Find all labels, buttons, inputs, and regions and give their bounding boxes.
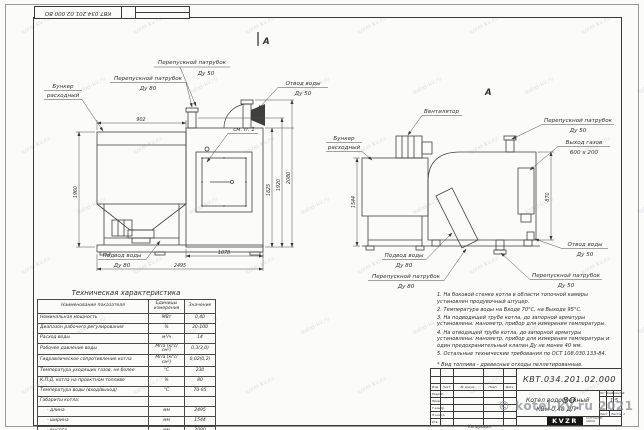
sheets-label: Листов 1: [611, 412, 625, 416]
callout-water-out-r-line2: Ду 50: [576, 252, 594, 258]
view-mark-a: А: [484, 88, 492, 98]
tech-table-cell: 14: [185, 334, 216, 344]
note-line: 2. Температура воды на Входе 70°С, на Вы…: [437, 307, 618, 314]
tech-table-cell: Габариты котла:: [38, 396, 149, 406]
callout-bypass50-bottom-line2: Ду 50: [557, 283, 575, 289]
tech-table-cell: мм: [149, 406, 185, 416]
callout-fan: Вентилятор: [424, 109, 459, 115]
tech-characteristics: Техническая характеристика Наименование …: [37, 289, 215, 430]
tech-table-cell: Гидравлическое сопротивление котла: [38, 355, 149, 366]
dim-height-left: 1960: [73, 186, 79, 198]
bypass-nozzle-bottom: [496, 240, 504, 250]
tech-table-cell: [185, 396, 216, 406]
dim-right-3: 2080: [286, 172, 292, 184]
base-frame: [97, 245, 263, 252]
dim-right-view-left: 1544: [351, 196, 357, 208]
tech-table-cell: м³/ч: [149, 334, 185, 344]
water-out-pipe: [243, 104, 251, 128]
sig-col-header: Дата: [503, 385, 516, 389]
dim-right-1: 1825: [266, 184, 272, 196]
sig-row-label: Пров.: [432, 399, 453, 403]
scale-value: 1:5: [607, 398, 621, 404]
sig-col-header: Подп.: [483, 385, 503, 389]
sig-row-label: Разраб.: [432, 392, 453, 396]
tech-table-header-row: Наименование показателяЕдиницы измерения…: [38, 300, 216, 314]
tech-table-cell: 2080: [185, 426, 216, 430]
dim-bottom-2: 2495: [174, 263, 186, 269]
tech-table-row: К.П.Д. котла на проектном топливе%80: [38, 376, 216, 386]
hopper-body: [97, 132, 186, 204]
tech-table-cell: К.П.Д. котла на проектном топливе: [38, 376, 149, 386]
callout-water-in-line2: Ду 80: [113, 263, 131, 269]
callout-bypass80-r-line1: Перепускной патрубок: [372, 274, 441, 280]
title-block: КВТ.034.201.02.000 ВО Котел водогрейный …: [430, 368, 622, 426]
tech-table-row: Номинальная мощностьМВт0,40: [38, 314, 216, 324]
callout-water-in-r-line2: Ду 80: [395, 263, 413, 269]
tech-table-cell: мм: [149, 416, 185, 426]
tech-table-cell: - высота: [38, 426, 149, 430]
notes: 1. На боковой стенке котла в области топ…: [437, 292, 618, 371]
sig-col-header: № докум.: [453, 385, 483, 389]
dim-bottom-1: 1078: [218, 250, 230, 256]
tech-col-header: Единицы измерения: [149, 300, 185, 314]
sig-col-header: Лист: [440, 385, 453, 389]
callout-bypass50-line2: Ду 50: [197, 71, 215, 77]
tech-table-cell: %: [149, 324, 185, 334]
callout-water-out-line1: Отвод воды: [285, 81, 321, 87]
callout-water-out-r-line1: Отвод воды: [567, 242, 603, 248]
kvzr-logo-caption: КОТЕЛЬНЫЙ ЗАВОД: [586, 417, 602, 424]
tech-col-header: Наименование показателя: [38, 300, 149, 314]
callout-bypass50-top-line2: Ду 50: [569, 128, 587, 134]
callout-bypass50-line1: Перепускной патрубок: [158, 60, 227, 66]
bypass-nozzle-top: [506, 140, 514, 152]
kvzr-logo: KVZR: [547, 417, 583, 425]
tech-table-row: - длинамм2495: [38, 406, 216, 416]
product-name-line2: КВм-0,40 ДП*: [516, 405, 599, 414]
col-scale: Масштаб: [612, 392, 621, 395]
callout-water-in-r-line1: Подвод воды: [385, 253, 424, 259]
product-name-line1: Котел водогрейный: [516, 396, 599, 405]
callout-bypass80-line1: Перепускной патрубок: [114, 76, 183, 82]
title-doc-number: КВТ.034.201.02.000 ВО: [516, 369, 622, 391]
callout-bypass50-bottom-line1: Перепускной патрубок: [532, 273, 601, 279]
copied-label: Копировал: [468, 424, 491, 429]
fan-body: [396, 136, 422, 158]
callout-hopper-line2: расходный: [46, 93, 80, 99]
callout-water-in-line1: Подвод воды: [103, 253, 142, 259]
note-line: 5. Остальные технические требования по О…: [437, 351, 618, 358]
tech-table-row: Расход водым³/ч14: [38, 334, 216, 344]
tech-table-cell: мм: [149, 426, 185, 430]
sig-row-label: Т.контр.: [432, 406, 453, 410]
gas-outlet-duct: [518, 168, 534, 214]
tech-table-cell: 1544: [185, 416, 216, 426]
tech-col-header: Значение: [185, 300, 216, 314]
tech-table-cell: 30-100: [185, 324, 216, 334]
sig-col-header: Изм.: [431, 385, 440, 389]
tech-table-cell: 80: [185, 376, 216, 386]
tech-table-cell: Номинальная мощность: [38, 314, 149, 324]
tech-table-row: Диапазон рабочего регулирования%30-100: [38, 324, 216, 334]
hopper-funnel: [97, 204, 186, 230]
tech-table-cell: °С: [149, 386, 185, 396]
tech-table-row: Габариты котла:: [38, 396, 216, 406]
right-view-dimensions: [353, 152, 554, 246]
boiler-body: [186, 128, 263, 247]
tech-table-cell: 230: [185, 366, 216, 376]
dim-right-view-right: 870: [545, 192, 551, 201]
hopper-front: [362, 158, 428, 216]
tech-table-cell: - длина: [38, 406, 149, 416]
callout-hopper-r-line2: расходный: [327, 145, 361, 151]
note-line: 1. На боковой стенке котла в области топ…: [437, 292, 618, 305]
tech-table-cell: Температура уходящих газов, не более: [38, 366, 149, 376]
right-view: [362, 136, 540, 254]
tech-table-cell: °С: [149, 366, 185, 376]
valve-symbol: [251, 104, 265, 126]
sheet-label: Лист: [600, 412, 608, 416]
sight-port: [205, 147, 209, 151]
note-line: 3. На подводящей трубе котла, до запорно…: [437, 315, 618, 328]
callout-bypass50-top-line1: Перепускной патрубок: [544, 118, 613, 124]
col-lit: Лит.: [599, 392, 606, 395]
tech-table: Наименование показателяЕдиницы измерения…: [37, 299, 216, 430]
bypass-nozzle: [188, 112, 196, 128]
callout-gas-out-line2: 600 х 200: [570, 150, 599, 156]
tech-table-cell: [149, 396, 185, 406]
tech-table-cell: МПа (кгс/см²): [149, 344, 185, 355]
tech-table-cell: - ширина: [38, 416, 149, 426]
callout-bypass80-r-line2: Ду 80: [397, 284, 415, 290]
section-mark-a: А: [262, 37, 270, 47]
tech-table-cell: 0,02(0,2): [185, 355, 216, 366]
tech-table-cell: %: [149, 376, 185, 386]
tech-table-cell: Расход воды: [38, 334, 149, 344]
water-out-stub: [527, 232, 534, 240]
tech-table-row: Температура воды (вход/выход)°С70-95: [38, 386, 216, 396]
bypass-nozzle-flange: [186, 108, 198, 112]
callout-gas-out-line1: Выход газов: [566, 140, 603, 146]
callout-hopper-line1: Бункер: [52, 84, 74, 90]
callout-bypass80-line2: Ду 80: [139, 86, 157, 92]
tech-table-row: Гидравлическое сопротивление котлаМПа (к…: [38, 355, 216, 366]
tech-table-cell: Температура воды (вход/выход): [38, 386, 149, 396]
boiler-cylinder: [428, 152, 536, 240]
sig-row-label: Утв.: [432, 420, 453, 424]
tech-table-cell: 2495: [185, 406, 216, 416]
tech-table-cell: 0,40: [185, 314, 216, 324]
feeder-motor: [112, 220, 132, 236]
note-line: 4. На отводящей трубе котла, до запорной…: [437, 330, 618, 350]
tech-table-title: Техническая характеристика: [37, 289, 215, 297]
tech-table-cell: 0,3(3,0): [185, 344, 216, 355]
tech-table-cell: Рабочее давление воды: [38, 344, 149, 355]
sig-row-label: Н.контр.: [432, 413, 453, 417]
callout-hopper-r-line1: Бункер: [333, 136, 355, 142]
callout-see-note: см. п. 1: [233, 127, 255, 133]
tech-table-cell: МВт: [149, 314, 185, 324]
tech-table-cell: МПа (кгс/см²): [149, 355, 185, 366]
dim-right-2: 1920: [276, 179, 282, 191]
tech-table-row: Температура уходящих газов, не более°С23…: [38, 366, 216, 376]
tech-table-cell: Диапазон рабочего регулирования: [38, 324, 149, 334]
callout-water-out-line2: Ду 50: [294, 91, 312, 97]
dim-hopper-width: 902: [136, 117, 145, 123]
tech-table-row: Рабочее давление водыМПа (кгс/см²)0,3(3,…: [38, 344, 216, 355]
drawing-sheet: КВТ.034.201.02.000 ВО: [0, 0, 644, 430]
inclined-feeder: [436, 188, 478, 248]
tech-table-row: - ширинамм1544: [38, 416, 216, 426]
tech-table-row: - высотамм2080: [38, 426, 216, 430]
tech-table-cell: 70-95: [185, 386, 216, 396]
